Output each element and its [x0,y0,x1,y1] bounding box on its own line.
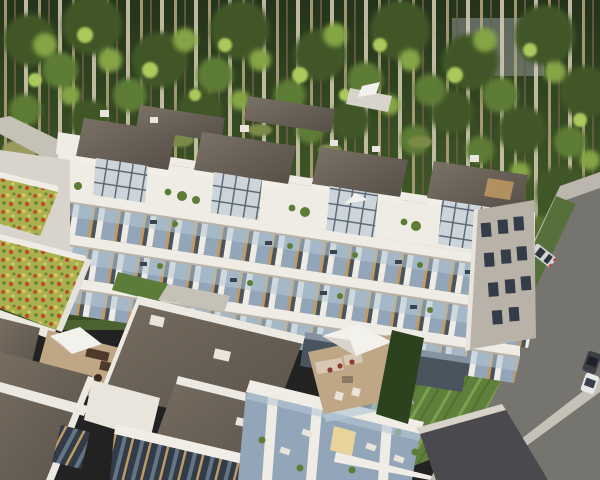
coffee-table [342,376,353,383]
cushion [337,363,342,368]
cushion [349,359,354,364]
render-canvas [0,0,600,480]
cushion [327,367,332,372]
scene-svg [0,0,600,480]
side-table [94,374,102,382]
building-end-wall [465,200,536,351]
